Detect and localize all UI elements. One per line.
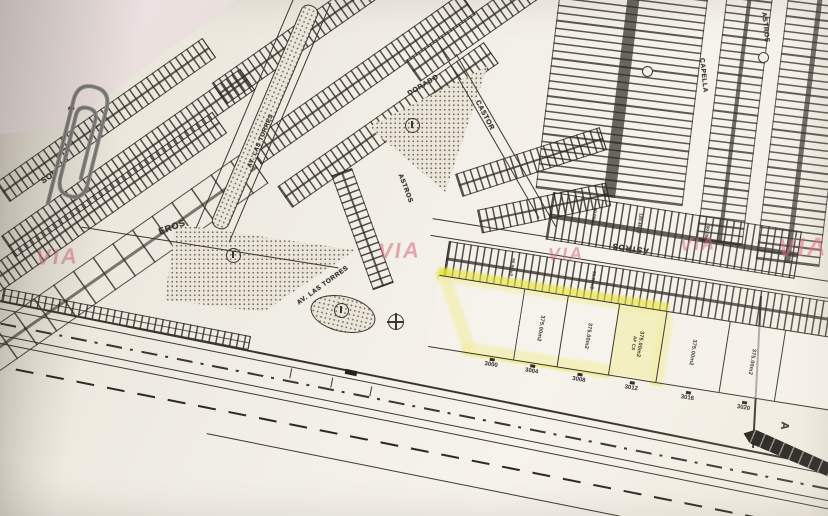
lot-number: 3000 bbox=[484, 361, 498, 369]
road-line bbox=[207, 433, 717, 516]
lot-number: 3008 bbox=[572, 376, 586, 384]
lot-area-label: 90.00m2 bbox=[590, 207, 598, 226]
cul-de-sac-circle bbox=[642, 66, 653, 77]
survey-cross-icon bbox=[388, 314, 404, 330]
lot-area-label: 375.00m2 bbox=[688, 338, 698, 365]
photo-of-plat-map: CONTRATO DE COM... DE C.V. ... ROBERTSON… bbox=[0, 0, 828, 516]
lot-area-label: 90.00m2 bbox=[508, 258, 516, 277]
street-label-capella: CAPELLA bbox=[698, 58, 709, 93]
via-watermark: VIA bbox=[548, 243, 585, 265]
lot-number: 3020 bbox=[736, 404, 750, 412]
lot-number: 3004 bbox=[524, 367, 538, 375]
lot-3000 bbox=[430, 276, 525, 359]
lot-area-label: 375.00m2AF CS bbox=[630, 329, 645, 357]
lot-3020: 375.00m2 bbox=[719, 322, 786, 401]
lot-area-label: 375.00m2 bbox=[583, 322, 593, 349]
via-watermark: VIA bbox=[777, 231, 827, 264]
lot-area-label: 90.00m2 bbox=[589, 271, 597, 290]
lot-number: 3016 bbox=[680, 394, 694, 402]
lot-area-label: 375.00m2 bbox=[747, 348, 757, 375]
street-label-astros: ASTROS bbox=[397, 173, 415, 204]
cul-de-sac-circle bbox=[758, 52, 769, 63]
lot-area-label: 375.00m2 bbox=[535, 314, 545, 341]
road-tick bbox=[330, 378, 333, 388]
lot-number: 3012 bbox=[624, 384, 638, 392]
road-marker-a: A bbox=[778, 421, 791, 431]
corner-lot-area-label: 129.46m2 bbox=[636, 213, 644, 234]
road-tick bbox=[369, 386, 372, 396]
via-watermark: VIA bbox=[680, 233, 717, 255]
roundabout-symbol-icon bbox=[334, 303, 349, 318]
lot-block-hatch bbox=[536, 0, 709, 206]
park-symbol-icon bbox=[405, 118, 420, 133]
via-watermark: VIA bbox=[36, 243, 80, 270]
via-watermark: VIA bbox=[378, 237, 422, 264]
road-tick bbox=[289, 368, 292, 378]
